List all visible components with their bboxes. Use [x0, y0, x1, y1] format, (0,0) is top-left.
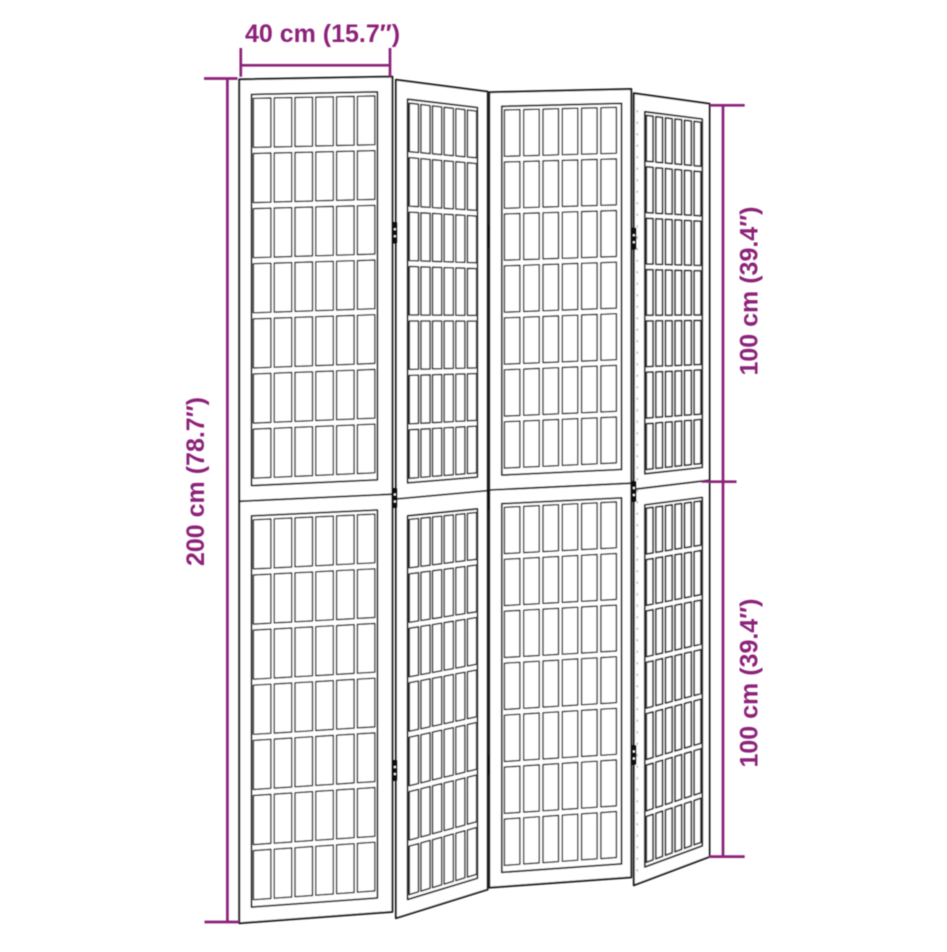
svg-text:200 cm (78.7″): 200 cm (78.7″): [182, 397, 210, 566]
svg-text:100 cm (39.4″): 100 cm (39.4″): [736, 206, 764, 375]
svg-text:100 cm (39.4″): 100 cm (39.4″): [736, 598, 764, 767]
svg-text:40 cm (15.7″): 40 cm (15.7″): [245, 20, 400, 48]
